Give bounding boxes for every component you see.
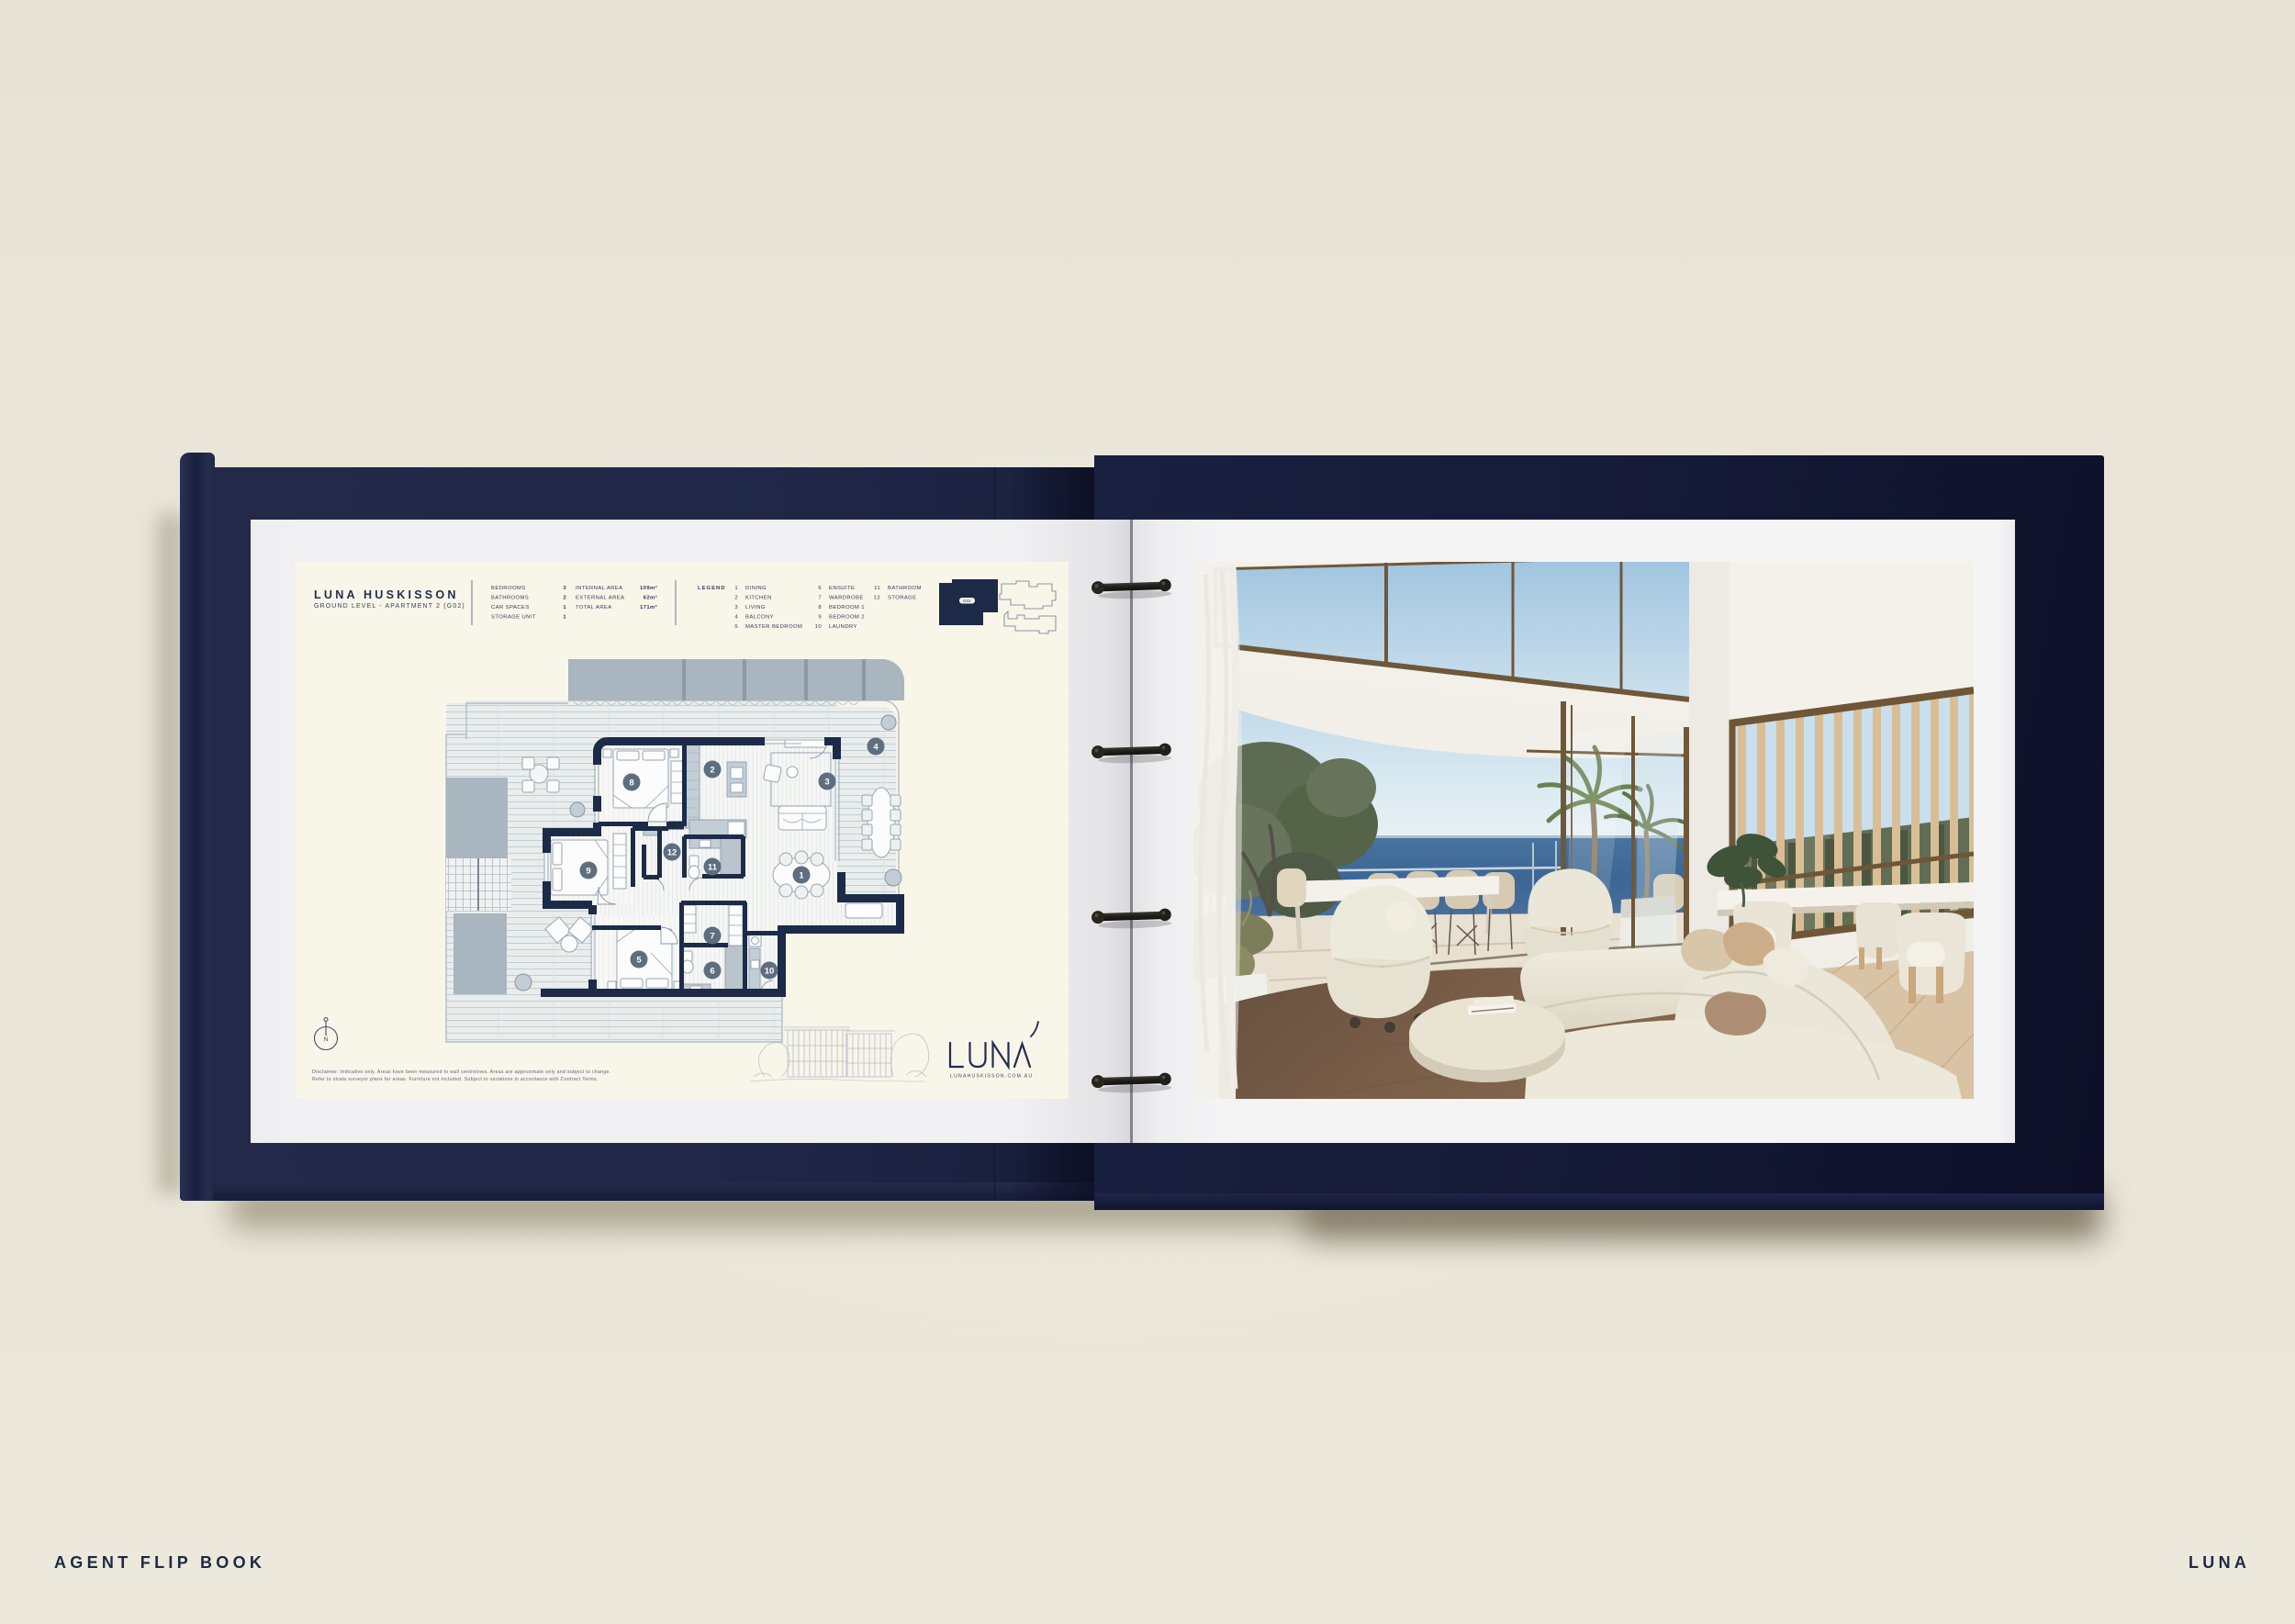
svg-text:STORAGE: STORAGE (888, 596, 917, 601)
svg-text:2: 2 (710, 766, 714, 776)
svg-text:9: 9 (818, 615, 822, 621)
svg-text:6: 6 (818, 586, 822, 591)
svg-text:BATHROOM: BATHROOM (888, 586, 922, 591)
svg-text:LUNA HUSKISSON: LUNA HUSKISSON (314, 588, 459, 601)
svg-text:3: 3 (734, 605, 738, 610)
svg-text:8: 8 (629, 778, 633, 789)
svg-text:171m²: 171m² (640, 604, 657, 610)
svg-text:BATHROOMS: BATHROOMS (491, 596, 529, 601)
svg-text:Disclaimer: Indicative only. A: Disclaimer: Indicative only. Areas have … (312, 1070, 610, 1075)
svg-text:11: 11 (874, 586, 880, 591)
svg-text:BEDROOMS: BEDROOMS (491, 586, 526, 591)
svg-text:LAUNDRY: LAUNDRY (829, 624, 857, 630)
svg-text:EXTERNAL AREA: EXTERNAL AREA (576, 596, 624, 601)
svg-text:1: 1 (563, 605, 566, 610)
svg-text:GROUND LEVEL - APARTMENT 2 (G0: GROUND LEVEL - APARTMENT 2 (G02) (314, 603, 465, 610)
svg-text:2: 2 (734, 596, 738, 601)
svg-text:BALCONY: BALCONY (745, 615, 774, 621)
svg-text:TOTAL AREA: TOTAL AREA (576, 605, 612, 610)
svg-text:LIVING: LIVING (745, 605, 766, 610)
svg-text:4: 4 (734, 615, 738, 621)
svg-text:G02: G02 (963, 599, 971, 603)
svg-text:BEDROOM 1: BEDROOM 1 (829, 605, 865, 610)
svg-text:7: 7 (710, 932, 714, 942)
svg-text:INTERNAL AREA: INTERNAL AREA (576, 586, 622, 591)
svg-text:Refer to strata surveyor plans: Refer to strata surveyor plans for areas… (312, 1077, 599, 1082)
svg-text:1: 1 (734, 586, 738, 591)
svg-text:10: 10 (765, 967, 775, 977)
svg-text:3: 3 (563, 586, 566, 591)
svg-text:2: 2 (563, 596, 566, 601)
svg-text:BEDROOM 2: BEDROOM 2 (829, 615, 865, 621)
svg-text:ENSUITE: ENSUITE (829, 586, 855, 591)
svg-text:KITCHEN: KITCHEN (745, 596, 772, 601)
svg-text:10: 10 (815, 624, 823, 630)
svg-text:6: 6 (710, 967, 714, 977)
svg-text:1: 1 (563, 615, 566, 621)
svg-text:5: 5 (636, 956, 642, 966)
svg-text:12: 12 (667, 848, 677, 858)
svg-text:9: 9 (586, 867, 590, 877)
svg-text:STORAGE UNIT: STORAGE UNIT (491, 615, 536, 621)
svg-text:11: 11 (708, 863, 718, 873)
svg-text:8: 8 (818, 605, 822, 610)
svg-text:109m²: 109m² (640, 585, 657, 591)
svg-text:MASTER BEDROOM: MASTER BEDROOM (745, 624, 802, 630)
svg-text:4: 4 (873, 743, 879, 753)
svg-text:CAR SPACES: CAR SPACES (491, 605, 530, 610)
svg-text:5: 5 (734, 624, 738, 630)
svg-text:LEGEND: LEGEND (698, 586, 726, 591)
svg-text:DINING: DINING (745, 586, 767, 591)
svg-text:7: 7 (818, 596, 822, 601)
svg-text:12: 12 (874, 596, 880, 601)
svg-text:WARDROBE: WARDROBE (829, 596, 864, 601)
svg-text:3: 3 (824, 778, 829, 788)
svg-text:62m²: 62m² (644, 595, 657, 601)
svg-text:1: 1 (799, 871, 804, 881)
svg-text:LUNAHUSKISSON.COM.AU: LUNAHUSKISSON.COM.AU (950, 1074, 1033, 1080)
svg-text:N: N (324, 1036, 329, 1043)
